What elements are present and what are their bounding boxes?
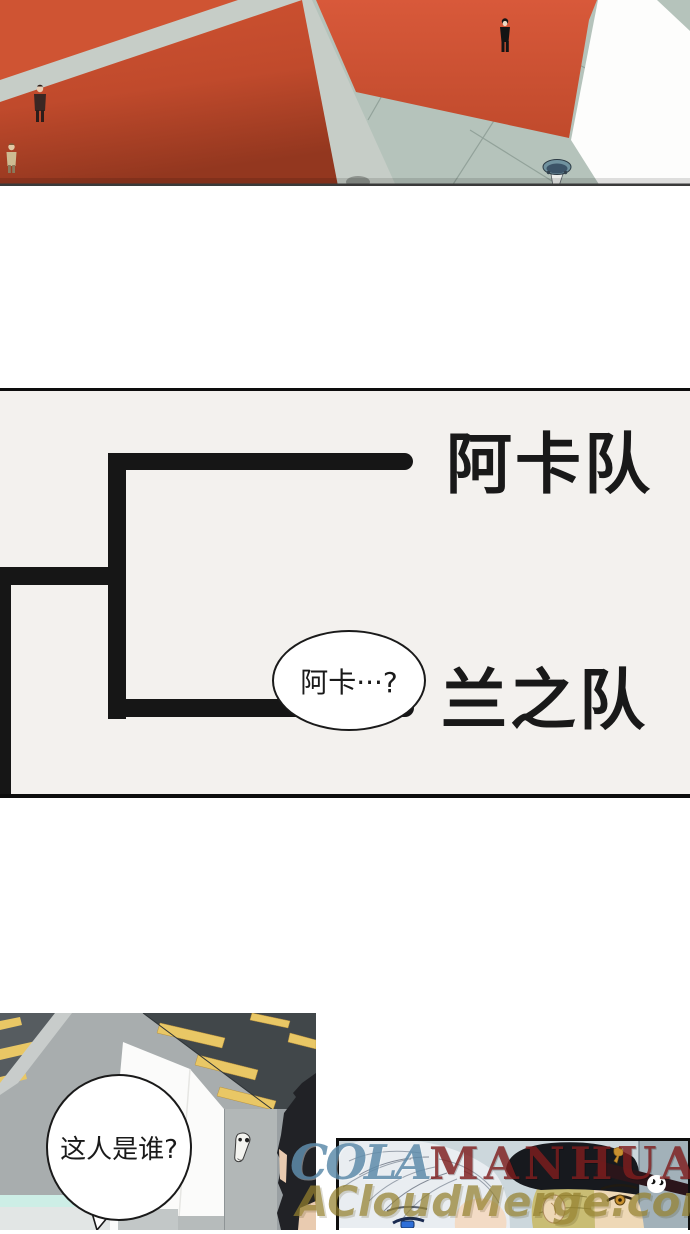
plaza-scene <box>0 0 690 186</box>
white-hair-eye <box>401 1221 414 1228</box>
team-name-top: 阿卡队 <box>446 432 653 498</box>
panel-bottom-border <box>0 184 690 187</box>
blond-ear <box>543 1195 565 1223</box>
small-quote-bubble-icon <box>647 1175 666 1193</box>
speech-bubble-who: 这人是谁? <box>46 1074 192 1221</box>
team-name-bottom: 兰之队 <box>441 668 648 734</box>
bracket-spine-line <box>108 453 126 719</box>
panel-tournament-bracket: 阿卡队 兰之队 阿卡···? <box>0 388 690 798</box>
duo-scene <box>339 1141 688 1228</box>
bracket-left-edge-line <box>0 567 11 794</box>
speech-bubble-aka: 阿卡···? <box>272 630 426 731</box>
bracket-top-arm-line <box>108 453 413 470</box>
panel-plaza-overhead <box>0 0 690 186</box>
speech-bubble-who-text: 这人是谁? <box>60 1129 178 1166</box>
speech-bubble-aka-text: 阿卡···? <box>300 661 398 701</box>
wall-column <box>224 1109 277 1230</box>
panel-two-characters <box>336 1138 690 1230</box>
wall-block-2 <box>178 1216 224 1230</box>
bracket-winner-line <box>0 567 126 585</box>
